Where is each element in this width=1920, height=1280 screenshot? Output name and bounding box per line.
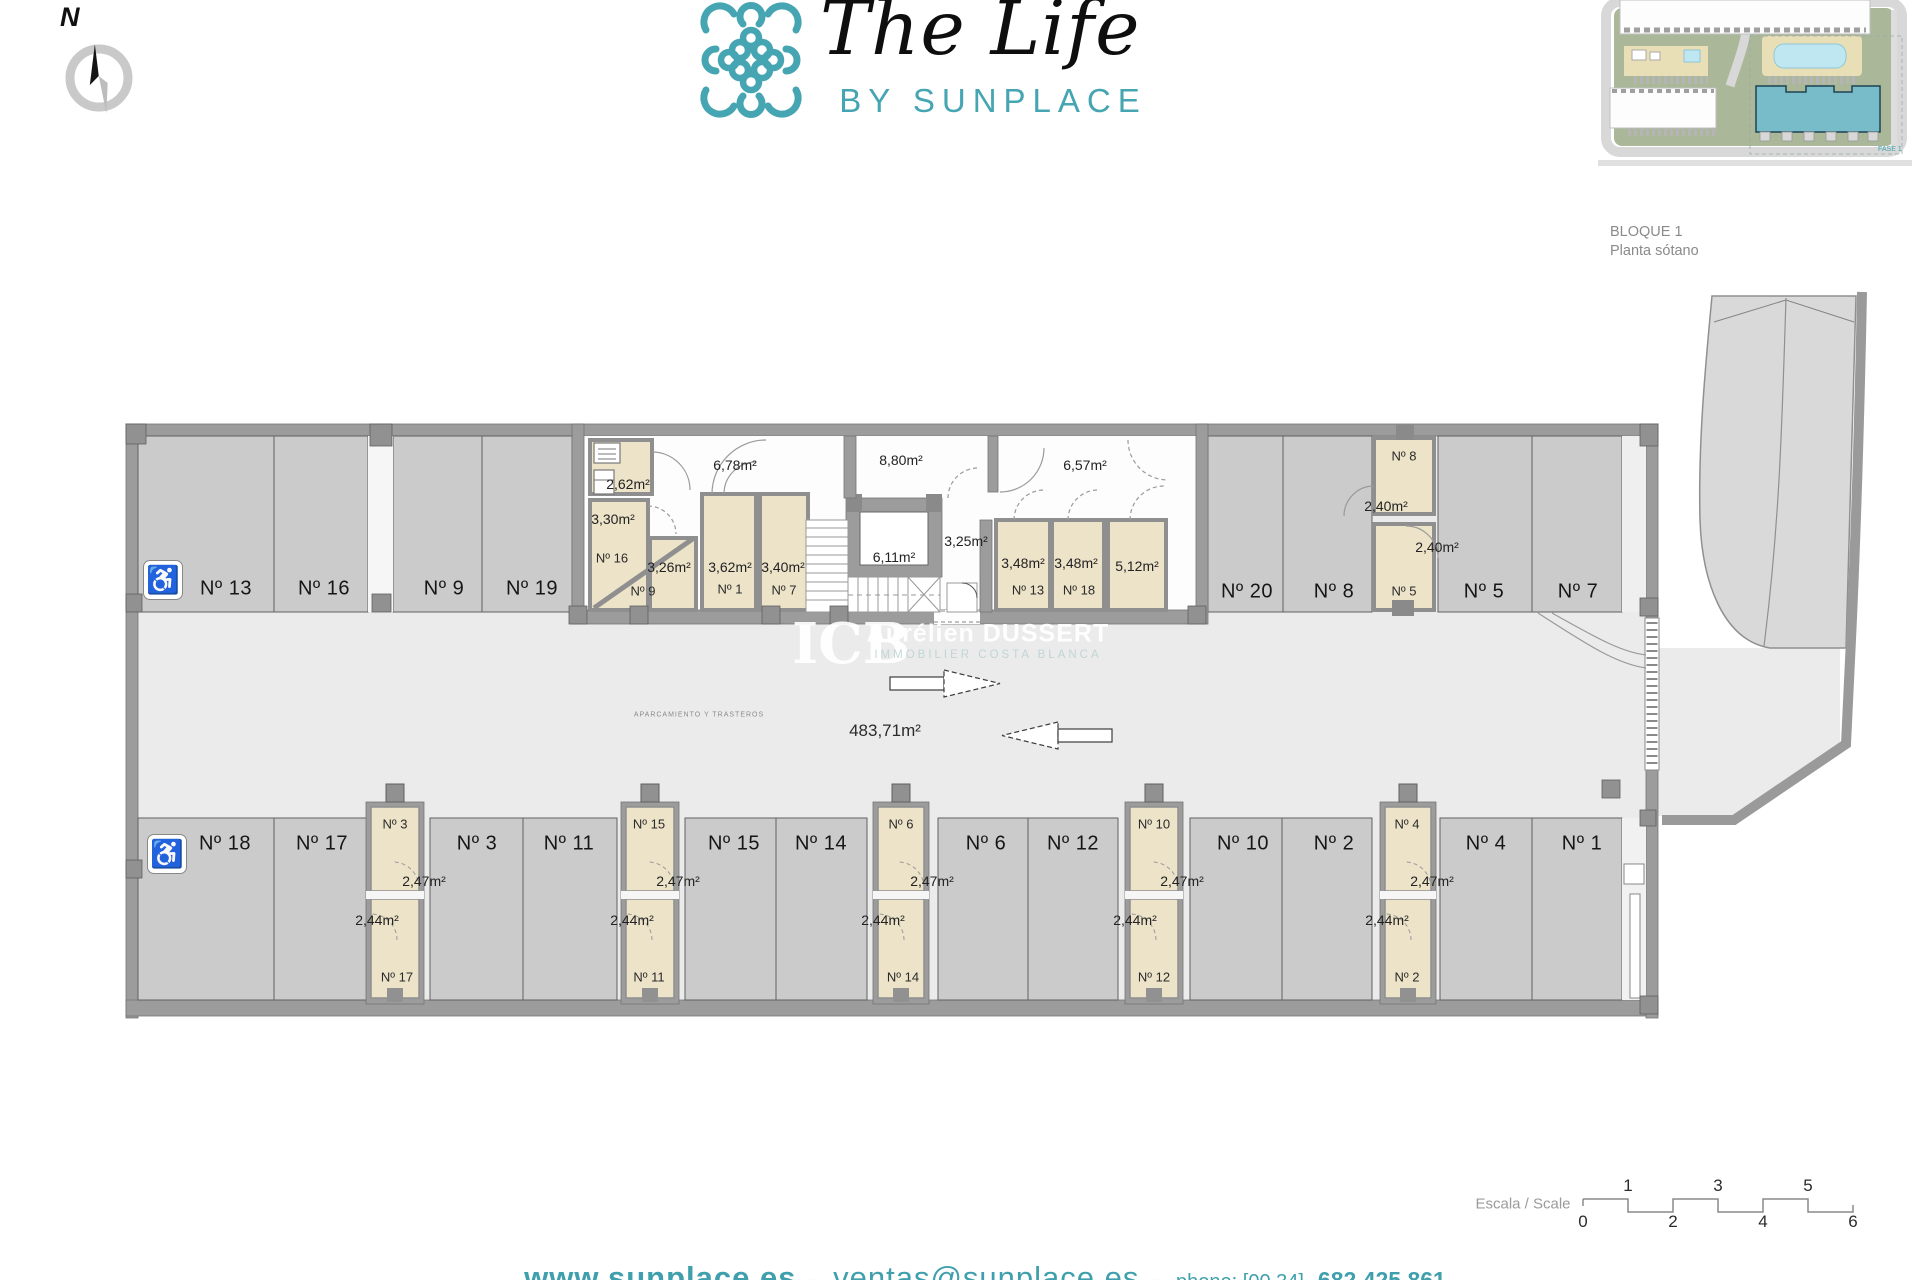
pillar-bay [368, 436, 393, 612]
storage-area-label: 2,44m² [610, 912, 654, 928]
storage-area-label: 3,48m² [1001, 555, 1045, 571]
scale-label: Escala / Scale [1475, 1196, 1570, 1213]
elevator-area-label: 6,11m² [873, 549, 916, 565]
storage-number-label: Nº 12 [1138, 970, 1170, 985]
parking-stall-label: Nº 10 [1217, 833, 1269, 856]
storage-area-label: 2,47m² [1410, 873, 1454, 889]
storage-number-label: Nº 9 [631, 584, 656, 599]
parking-stall-label: Nº 15 [708, 833, 760, 856]
storage-number-label: Nº 16 [596, 551, 628, 566]
parking-stall-label: Nº 20 [1221, 581, 1273, 604]
scale-tick: 5 [1803, 1176, 1812, 1196]
parking-stall-label: Nº 6 [966, 833, 1006, 856]
storage-number-label: Nº 4 [1395, 817, 1420, 832]
storage-area-label: 3,30m² [591, 511, 635, 527]
scale-tick: 6 [1848, 1212, 1857, 1232]
total-area-label: 483,71m² [849, 721, 921, 741]
scale-tick: 4 [1758, 1212, 1767, 1232]
storage-number-label: Nº 18 [1063, 583, 1095, 598]
scale-tick: 3 [1713, 1176, 1722, 1196]
parking-stall-label: Nº 9 [424, 578, 464, 601]
parking-stall-label: Nº 1 [1562, 833, 1602, 856]
parking-stall-label: Nº 16 [298, 578, 350, 601]
storage-area-label: 2,40m² [1364, 498, 1408, 514]
storage-area-label: 3,48m² [1054, 555, 1098, 571]
storage-area-label: 2,40m² [1415, 539, 1459, 555]
parking-stall-label: Nº 14 [795, 833, 847, 856]
storage-area-label: 3,40m² [761, 559, 805, 575]
parking-stall-label: Nº 5 [1464, 581, 1504, 604]
parking-stall-label: Nº 4 [1466, 833, 1506, 856]
storage-area-label: 3,26m² [647, 559, 691, 575]
storage-number-label: Nº 8 [1392, 449, 1417, 464]
parking-stall-label: Nº 12 [1047, 833, 1099, 856]
storage-number-label: Nº 15 [633, 817, 665, 832]
storage-area-label: 2,44m² [1113, 912, 1157, 928]
footer: www.sunplace.es - ventas@sunplace.es - p… [524, 1260, 1446, 1280]
zone-label: APARCAMIENTO Y TRASTEROS [634, 712, 764, 719]
storage-area-label: 2,62m² [606, 476, 650, 492]
footer-phone-label: phone: [00 34] [1176, 1271, 1304, 1280]
parking-stall-label: Nº 2 [1314, 833, 1354, 856]
parking-stall-label: Nº 19 [506, 578, 558, 601]
footer-separator: - [1153, 1264, 1162, 1280]
storage-area-label: 3,62m² [708, 559, 752, 575]
storage-number-label: Nº 3 [383, 817, 408, 832]
corridor-area-label: 6,57m² [1063, 457, 1107, 473]
scale-bar [1583, 1199, 1853, 1212]
storage-number-label: Nº 1 [718, 582, 743, 597]
accessible-parking-icon: ♿ [143, 560, 183, 600]
scale-tick: 1 [1623, 1176, 1632, 1196]
storage-area-label: 2,44m² [355, 912, 399, 928]
storage-area-label: 2,47m² [402, 873, 446, 889]
storage-number-label: Nº 17 [381, 970, 413, 985]
parking-stall-label: Nº 11 [544, 833, 595, 856]
footer-email-link[interactable]: ventas@sunplace.es [833, 1260, 1139, 1280]
storage-number-label: Nº 7 [772, 583, 797, 598]
storage-area-label: 5,12m² [1115, 558, 1159, 574]
corridor-area-label: 6,78m² [713, 457, 757, 473]
scale-tick: 2 [1668, 1212, 1677, 1232]
storage-number-label: Nº 5 [1392, 584, 1417, 599]
annex-floor [1654, 648, 1840, 816]
parking-stall-label: Nº 3 [457, 833, 497, 856]
footer-separator: - [810, 1264, 819, 1280]
parking-stall-label: Nº 13 [200, 578, 252, 601]
watermark-tagline: IMMOBILIER COSTA BLANCA [874, 649, 1101, 661]
scale-tick: 0 [1578, 1212, 1587, 1232]
accessible-parking-icon: ♿ [147, 834, 187, 874]
parking-stall-label: Nº 8 [1314, 581, 1354, 604]
corridor-area-label: 8,80m² [879, 452, 923, 468]
parking-stall-label: Nº 17 [296, 833, 348, 856]
storage-area-label: 2,47m² [910, 873, 954, 889]
parking-stall-label: Nº 7 [1558, 581, 1598, 604]
storage-area-label: 2,47m² [1160, 873, 1204, 889]
storage-number-label: Nº 2 [1395, 970, 1420, 985]
door-fixture [1624, 864, 1644, 884]
footer-website-link[interactable]: www.sunplace.es [524, 1260, 796, 1280]
watermark-name: Aurélien DUSSERT [867, 620, 1109, 649]
page: N The Life BY SUNPLACE [0, 0, 1920, 1280]
footer-phone-number: 682 425 861 [1318, 1267, 1446, 1280]
storage-number-label: Nº 13 [1012, 583, 1044, 598]
storage-number-label: Nº 11 [633, 970, 664, 985]
storage-number-label: Nº 6 [889, 817, 914, 832]
parking-stall-label: Nº 18 [199, 833, 251, 856]
storage-area-label: 2,44m² [1365, 912, 1409, 928]
storage-area-label: 2,47m² [656, 873, 700, 889]
storage-area-label: 2,44m² [861, 912, 905, 928]
landing-area-label: 3,25m² [944, 533, 988, 549]
storage-number-label: Nº 10 [1138, 817, 1170, 832]
storage-number-label: Nº 14 [887, 970, 919, 985]
